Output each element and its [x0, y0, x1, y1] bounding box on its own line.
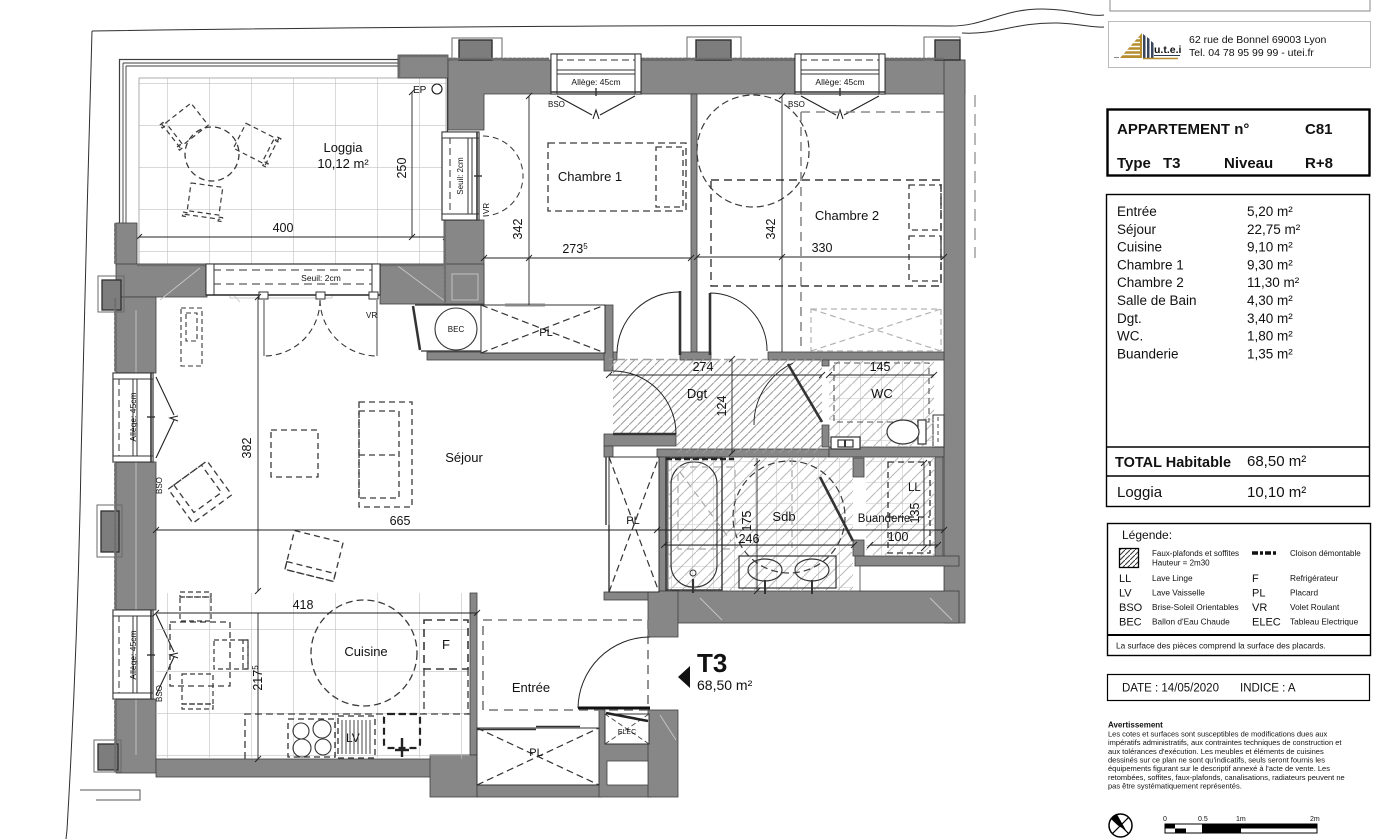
- svg-text:Loggia: Loggia: [323, 140, 363, 155]
- svg-text:impératifs administratifs, aux: impératifs administratifs, aux contraint…: [1108, 738, 1342, 747]
- svg-text:Avertissement: Avertissement: [1108, 721, 1163, 730]
- svg-text:WC.: WC.: [1117, 329, 1143, 344]
- svg-text:ELEC: ELEC: [1252, 617, 1281, 629]
- svg-text:Chambre 2: Chambre 2: [815, 208, 879, 223]
- svg-text:ELEC: ELEC: [618, 729, 636, 736]
- svg-text:Séjour: Séjour: [445, 450, 483, 465]
- svg-text:145: 145: [870, 360, 891, 374]
- svg-text:Loggia: Loggia: [1117, 484, 1163, 501]
- svg-text:TOTAL Habitable: TOTAL Habitable: [1115, 455, 1231, 471]
- svg-text:VR: VR: [1252, 602, 1267, 614]
- svg-text:0: 0: [1163, 816, 1167, 823]
- svg-text:2735: 2735: [562, 242, 588, 256]
- svg-text:Faux-plafonds et soffites: Faux-plafonds et soffites: [1152, 549, 1239, 558]
- svg-text:T3: T3: [1163, 155, 1181, 172]
- svg-text:4,30 m²: 4,30 m²: [1247, 293, 1293, 308]
- svg-text:22,75 m²: 22,75 m²: [1247, 222, 1301, 237]
- svg-text:aux tolérances d'exécution. Le: aux tolérances d'exécution. Les meubles …: [1108, 747, 1324, 756]
- svg-text:R+8: R+8: [1305, 155, 1333, 172]
- svg-text:u.t.e.i: u.t.e.i: [1154, 44, 1182, 56]
- svg-text:Type: Type: [1117, 155, 1151, 172]
- svg-text:Chambre 2: Chambre 2: [1117, 275, 1184, 290]
- svg-text:Entrée: Entrée: [1117, 204, 1157, 219]
- svg-text:Placard: Placard: [1290, 588, 1319, 598]
- svg-text:La surface des pièces comprend: La surface des pièces comprend la surfac…: [1116, 641, 1326, 651]
- svg-text:EP: EP: [413, 85, 427, 96]
- svg-text:Lave Linge: Lave Linge: [1152, 573, 1193, 583]
- svg-text:retombées, soffites, faux-plaf: retombées, soffites, faux-plafonds, cana…: [1108, 773, 1345, 782]
- svg-text:Allège: 45cm: Allège: 45cm: [128, 392, 138, 441]
- svg-text:124: 124: [715, 396, 729, 417]
- svg-text:Entrée: Entrée: [512, 680, 550, 695]
- svg-text:Dgt.: Dgt.: [1117, 311, 1142, 326]
- svg-text:Ballon d'Eau Chaude: Ballon d'Eau Chaude: [1152, 617, 1230, 627]
- svg-text:0.5: 0.5: [1198, 816, 1208, 823]
- svg-text:10,12 m²: 10,12 m²: [317, 156, 369, 171]
- svg-text:Brise-Soleil Orientables: Brise-Soleil Orientables: [1152, 602, 1239, 612]
- svg-text:Chambre 1: Chambre 1: [1117, 257, 1184, 272]
- svg-text:Hauteur = 2m30: Hauteur = 2m30: [1152, 559, 1210, 568]
- svg-text:équipements figurant sur le de: équipements figurant sur le descriptif a…: [1108, 764, 1330, 773]
- svg-text:Allège: 45cm: Allège: 45cm: [128, 630, 138, 679]
- svg-text:Cuisine: Cuisine: [344, 644, 387, 659]
- svg-text:Chambre 1: Chambre 1: [558, 169, 622, 184]
- svg-text:382: 382: [240, 438, 254, 459]
- svg-text:665: 665: [390, 514, 411, 528]
- svg-text:Dgt: Dgt: [687, 386, 708, 401]
- svg-text:418: 418: [293, 598, 314, 612]
- svg-text:Tel. 04 78 95 99 99 - utei.fr: Tel. 04 78 95 99 99 - utei.fr: [1189, 47, 1314, 59]
- svg-text:BSO: BSO: [548, 100, 565, 109]
- svg-text:135: 135: [908, 503, 922, 524]
- svg-text:Seuil: 2cm: Seuil: 2cm: [301, 273, 341, 283]
- svg-text:11,30 m²: 11,30 m²: [1247, 275, 1300, 290]
- svg-text:APPARTEMENT n°: APPARTEMENT n°: [1117, 121, 1249, 138]
- svg-text:Séjour: Séjour: [1117, 222, 1157, 237]
- svg-text:1m: 1m: [1236, 816, 1246, 823]
- svg-text:Cuisine: Cuisine: [1117, 240, 1162, 255]
- svg-text:PL: PL: [539, 327, 552, 339]
- svg-text:PL: PL: [1252, 588, 1265, 600]
- svg-text:175: 175: [740, 511, 754, 532]
- svg-text:3,40 m²: 3,40 m²: [1247, 311, 1293, 326]
- svg-text:BSO: BSO: [1119, 602, 1143, 614]
- svg-text:246: 246: [739, 532, 760, 546]
- svg-text:Refrigérateur: Refrigérateur: [1290, 573, 1339, 583]
- svg-text:10,10 m²: 10,10 m²: [1247, 484, 1306, 501]
- svg-text:Niveau: Niveau: [1224, 155, 1273, 172]
- svg-text:274: 274: [693, 360, 714, 374]
- svg-text:Buanderie: Buanderie: [1117, 346, 1179, 361]
- svg-text:9,10 m²: 9,10 m²: [1247, 240, 1293, 255]
- svg-text:Les cotes et surfaces sont sus: Les cotes et surfaces sont susceptibles …: [1108, 729, 1328, 738]
- svg-text:dessinés sur ce plan ne sont q: dessinés sur ce plan ne sont qu'indicati…: [1108, 756, 1325, 765]
- svg-text:LL: LL: [908, 482, 921, 494]
- svg-text:pas être systématiquement repr: pas être systématiquement représentés.: [1108, 782, 1242, 791]
- svg-text:Allège: 45cm: Allège: 45cm: [815, 77, 864, 87]
- svg-text:Salle de Bain: Salle de Bain: [1117, 293, 1197, 308]
- svg-text:68,50 m²: 68,50 m²: [697, 677, 753, 693]
- svg-text:68,50 m²: 68,50 m²: [1247, 453, 1306, 470]
- svg-text:C81: C81: [1305, 121, 1333, 138]
- svg-text:Seuil: 2cm: Seuil: 2cm: [456, 157, 465, 195]
- svg-text:BSO: BSO: [788, 100, 805, 109]
- svg-text:1,35 m²: 1,35 m²: [1247, 346, 1293, 361]
- svg-text:330: 330: [812, 241, 833, 255]
- svg-text:VR: VR: [366, 311, 377, 320]
- svg-text:BEC: BEC: [448, 325, 465, 334]
- svg-text:400: 400: [273, 221, 294, 235]
- svg-text:BSO: BSO: [155, 477, 164, 494]
- svg-text:Cloison démontable: Cloison démontable: [1290, 549, 1361, 558]
- svg-text:Tableau Electrique: Tableau Electrique: [1290, 617, 1359, 627]
- svg-text:PL: PL: [626, 515, 639, 527]
- svg-text:62 rue de Bonnel 69003 Lyon: 62 rue de Bonnel 69003 Lyon: [1189, 34, 1327, 46]
- svg-text:1,80 m²: 1,80 m²: [1247, 329, 1293, 344]
- svg-text:250: 250: [395, 158, 409, 179]
- svg-text:WC: WC: [871, 386, 893, 401]
- svg-text:Buanderie: Buanderie: [858, 513, 910, 525]
- svg-text:Allège: 45cm: Allège: 45cm: [571, 77, 620, 87]
- svg-text:BEC: BEC: [1119, 617, 1142, 629]
- svg-text:INDICE : A: INDICE : A: [1240, 683, 1296, 695]
- svg-text:342: 342: [511, 219, 525, 240]
- svg-text:5,20 m²: 5,20 m²: [1247, 204, 1293, 219]
- svg-text:Volet Roulant: Volet Roulant: [1290, 602, 1340, 612]
- svg-text:100: 100: [888, 530, 909, 544]
- svg-text:342: 342: [764, 219, 778, 240]
- svg-text:LL: LL: [1119, 573, 1131, 585]
- svg-text:F: F: [1252, 573, 1259, 585]
- svg-text:Lave Vaisselle: Lave Vaisselle: [1152, 588, 1205, 598]
- svg-text:2m: 2m: [1310, 816, 1320, 823]
- svg-text:T3: T3: [697, 648, 727, 678]
- svg-text:9,30 m²: 9,30 m²: [1247, 257, 1293, 272]
- svg-text:LV: LV: [1119, 588, 1132, 600]
- svg-text:Légende:: Légende:: [1122, 528, 1172, 542]
- svg-text:DATE : 14/05/2020: DATE : 14/05/2020: [1122, 683, 1219, 695]
- svg-text:PL: PL: [529, 747, 542, 759]
- svg-text:VR: VR: [482, 203, 491, 214]
- svg-text:F: F: [442, 637, 450, 652]
